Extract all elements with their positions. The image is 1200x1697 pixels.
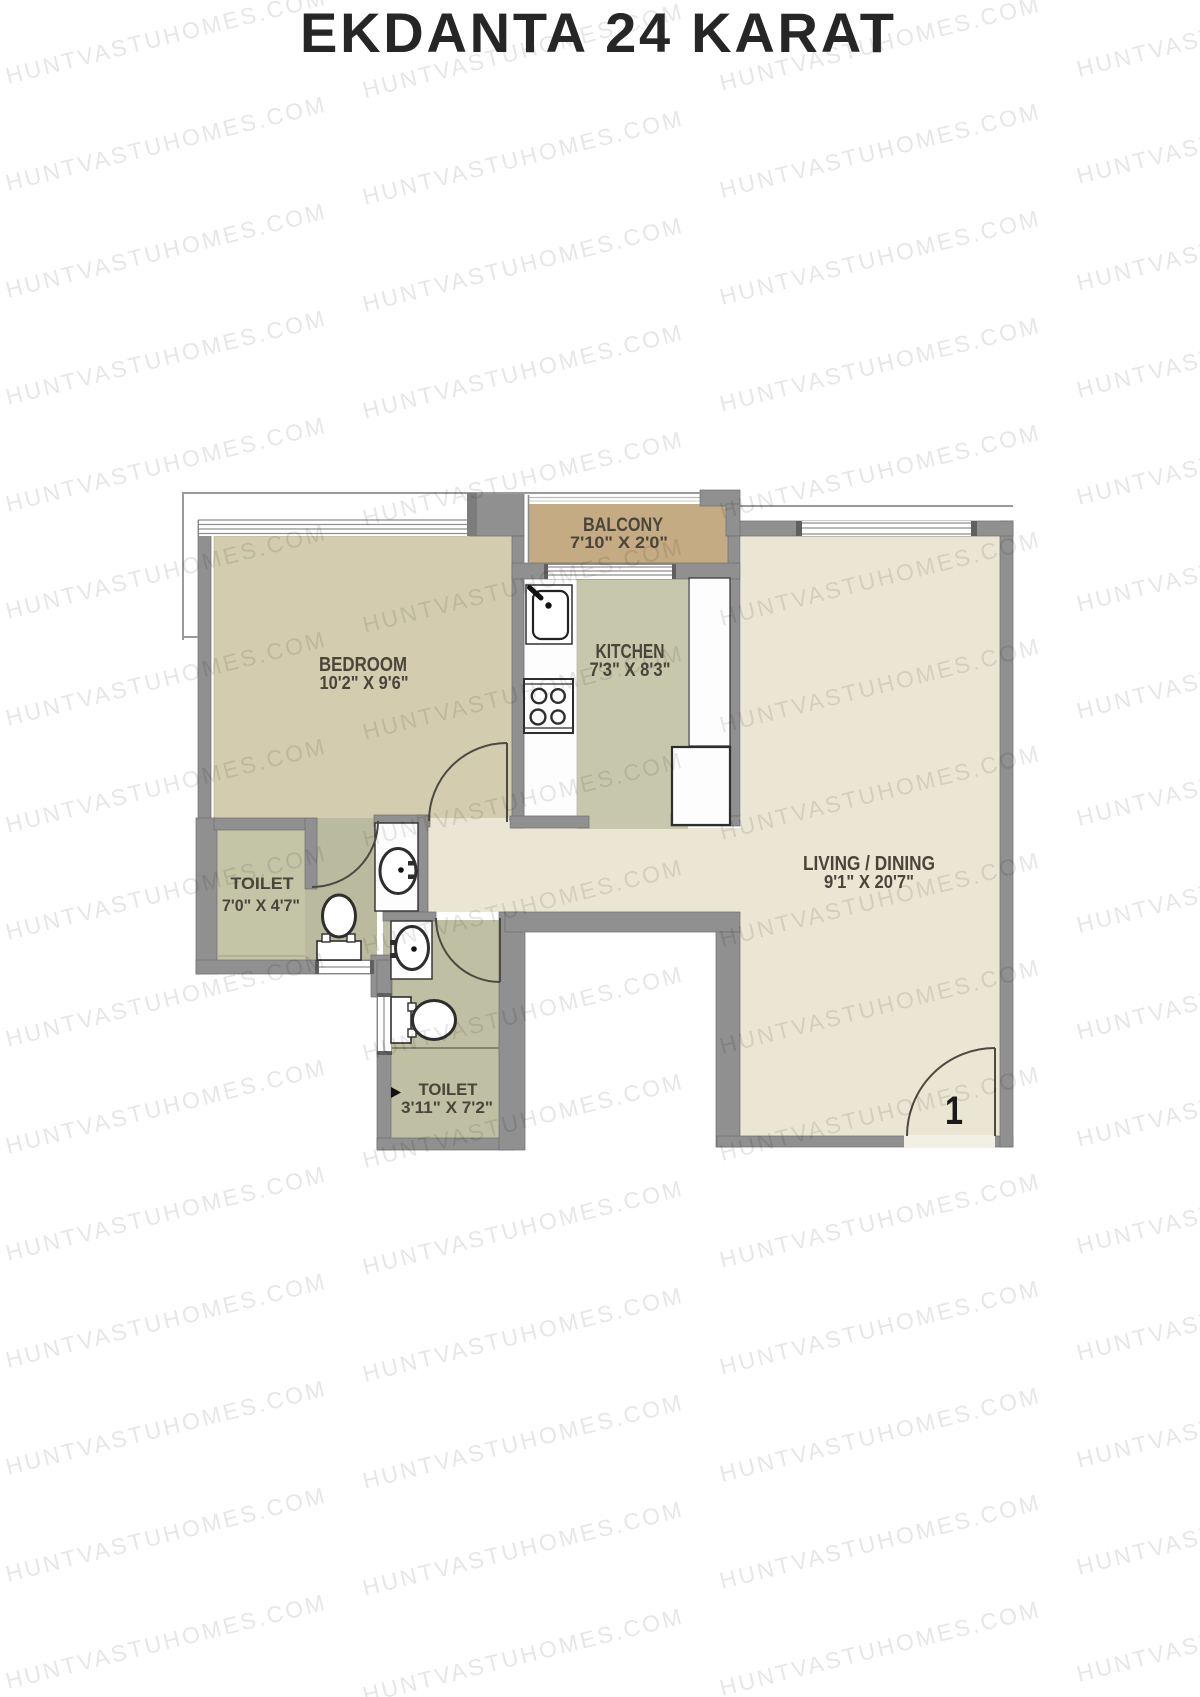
svg-text:10'2" X 9'6": 10'2" X 9'6" [320, 672, 409, 693]
svg-text:7'0" X 4'7": 7'0" X 4'7" [222, 896, 300, 915]
svg-text:EKDANTA 24 KARAT: EKDANTA 24 KARAT [300, 1, 894, 64]
svg-text:3'11" X 7'2": 3'11" X 7'2" [401, 1098, 493, 1117]
svg-text:TOILET: TOILET [419, 1081, 478, 1099]
